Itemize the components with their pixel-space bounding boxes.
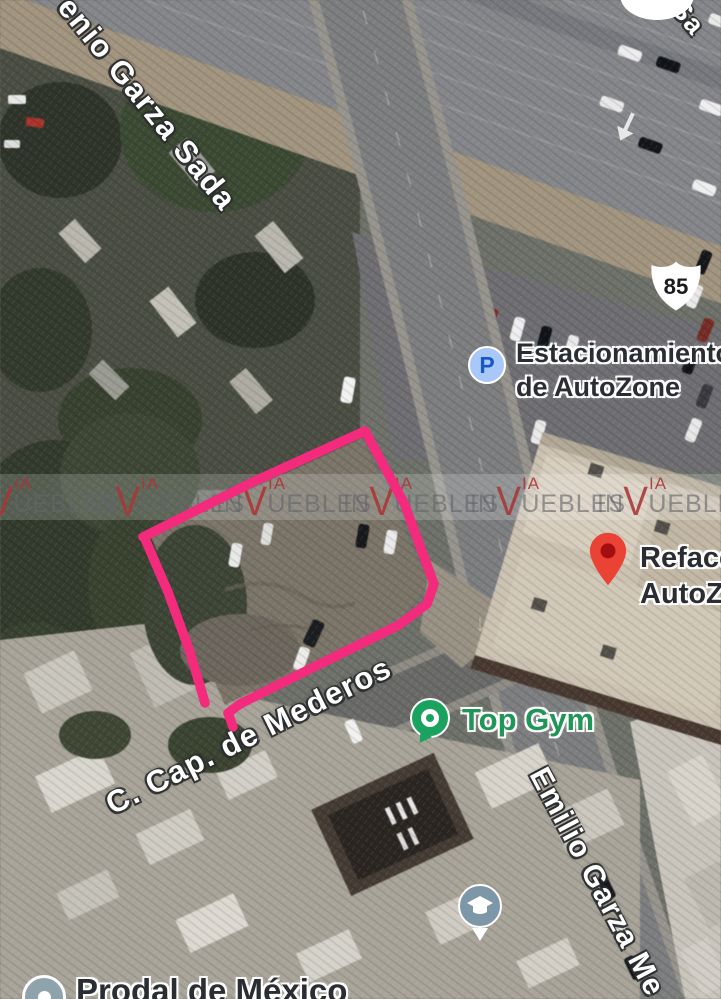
highlight-polygon: [143, 431, 434, 727]
highlight-annotation-layer: [0, 0, 721, 999]
satellite-map: INVUEBLESIA INVUEBLESIA INVUEBLESIA INVU…: [0, 0, 721, 999]
